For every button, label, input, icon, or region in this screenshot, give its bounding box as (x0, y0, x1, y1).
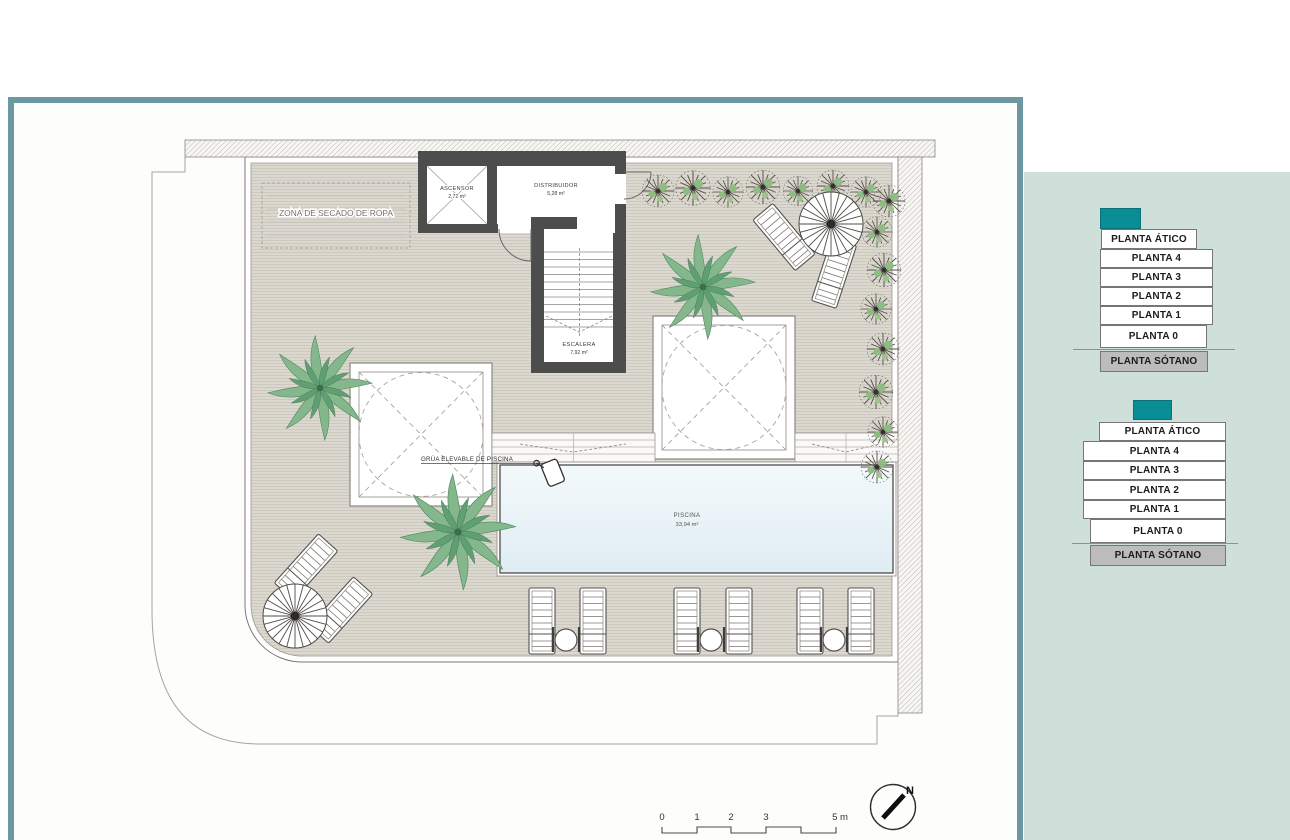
floor-level-1[interactable]: PLANTA 1 (1100, 306, 1213, 325)
roof-cap (1100, 208, 1141, 229)
floor-level-atico[interactable]: PLANTA ÁTICO (1099, 422, 1226, 441)
floor-level-3[interactable]: PLANTA 3 (1083, 461, 1226, 480)
roof-cap (1133, 400, 1172, 420)
floor-level-2[interactable]: PLANTA 2 (1100, 287, 1213, 306)
floor-level-0[interactable]: PLANTA 0 (1090, 519, 1226, 543)
floor-level-2[interactable]: PLANTA 2 (1083, 480, 1226, 500)
floor-level-4[interactable]: PLANTA 4 (1100, 249, 1213, 268)
plan-sheet: PLANTA SOLARIUM (8, 97, 1023, 840)
floor-level-atico[interactable]: PLANTA ÁTICO (1101, 229, 1197, 249)
floor-level-sotano[interactable]: PLANTA SÓTANO (1100, 351, 1208, 372)
floor-level-1[interactable]: PLANTA 1 (1083, 500, 1226, 519)
floor-level-3[interactable]: PLANTA 3 (1100, 268, 1213, 287)
floor-level-0[interactable]: PLANTA 0 (1100, 325, 1207, 348)
page: PLANTA SOLARIUM (0, 0, 1290, 840)
ground-line (1072, 543, 1238, 544)
floor-level-4[interactable]: PLANTA 4 (1083, 441, 1226, 461)
ground-line (1073, 349, 1235, 350)
floor-level-sotano[interactable]: PLANTA SÓTANO (1090, 545, 1226, 566)
